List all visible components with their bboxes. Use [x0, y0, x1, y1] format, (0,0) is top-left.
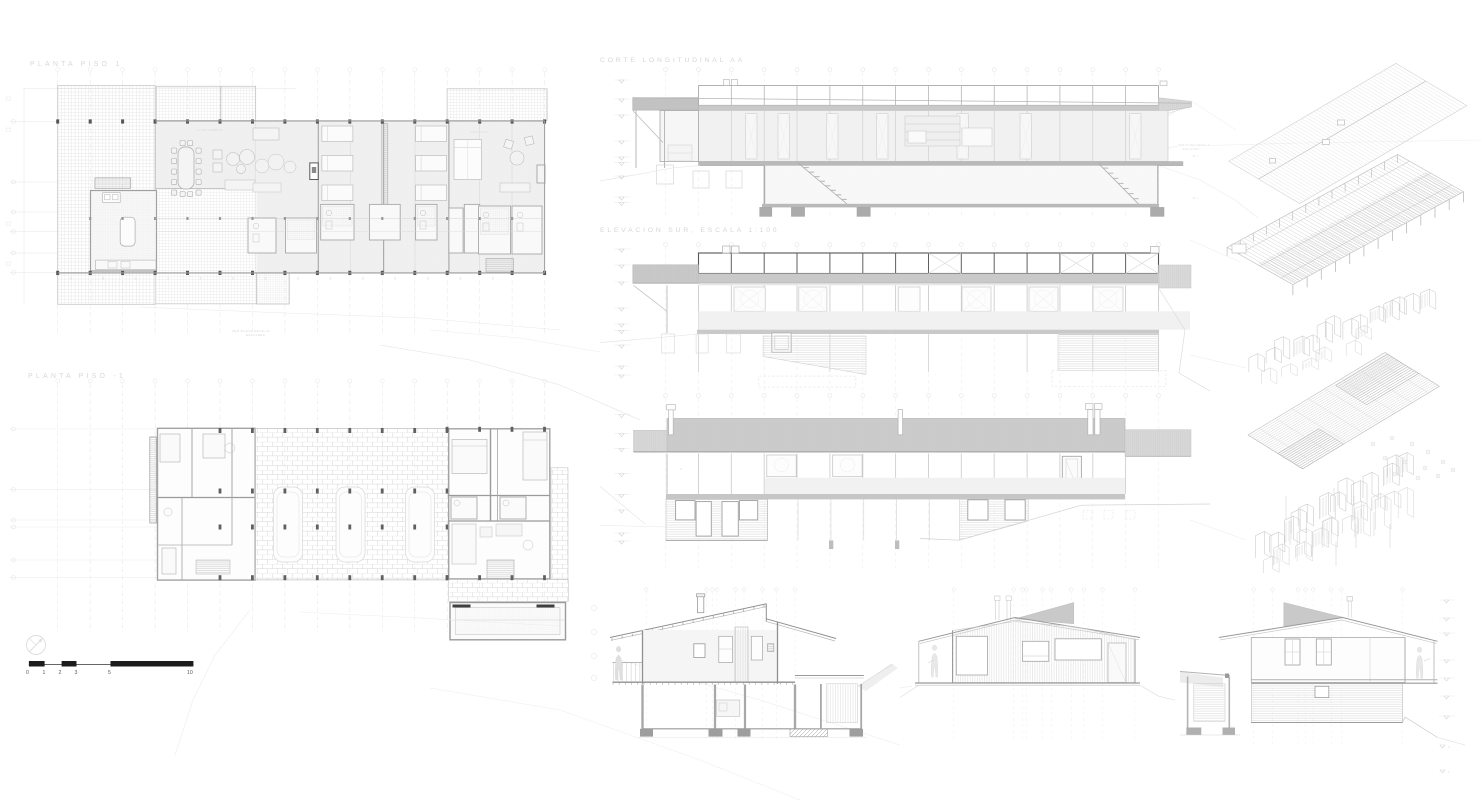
svg-text:5: 5: [108, 670, 111, 676]
svg-text:10: 10: [187, 670, 193, 676]
svg-text:VER PLANO DETALLE: VER PLANO DETALLE: [1178, 143, 1210, 147]
svg-text:DORMITORIO: DORMITORIO: [470, 131, 489, 134]
svg-text:3: 3: [70, 277, 72, 281]
svg-text:PLANTA PISO 1: PLANTA PISO 1: [30, 61, 122, 68]
svg-text:3: 3: [265, 277, 267, 281]
svg-text:3: 3: [135, 277, 137, 281]
svg-text:3: 3: [427, 277, 429, 281]
svg-text:ELEVACION SUR, ESCALA 1:100: ELEVACION SUR, ESCALA 1:100: [600, 227, 779, 234]
svg-text:ESCALERA: ESCALERA: [246, 333, 265, 337]
svg-text:3: 3: [362, 277, 364, 281]
svg-text:3: 3: [167, 277, 169, 281]
svg-text:0: 0: [26, 670, 29, 676]
svg-text:3: 3: [297, 277, 299, 281]
svg-text:2: 2: [59, 670, 62, 676]
svg-text:CORTE LONGITUDINAL AA: CORTE LONGITUDINAL AA: [600, 57, 745, 64]
svg-text:3: 3: [459, 277, 461, 281]
svg-text:ESCALERA: ESCALERA: [1183, 147, 1199, 151]
svg-text:N +: N +: [1193, 154, 1199, 158]
svg-text:LIVING COMEDOR: LIVING COMEDOR: [196, 128, 223, 132]
svg-text:3: 3: [329, 277, 331, 281]
svg-text:3: 3: [492, 277, 494, 281]
svg-text:3: 3: [102, 277, 104, 281]
svg-text:3: 3: [394, 277, 396, 281]
svg-text:N: N: [680, 467, 682, 471]
svg-text:3: 3: [232, 277, 234, 281]
svg-text:PLANTA PISO -1: PLANTA PISO -1: [28, 373, 126, 380]
svg-text:3: 3: [75, 670, 78, 676]
svg-text:N +: N +: [1193, 196, 1199, 200]
svg-text:1: 1: [43, 670, 46, 676]
svg-text:3: 3: [200, 277, 202, 281]
